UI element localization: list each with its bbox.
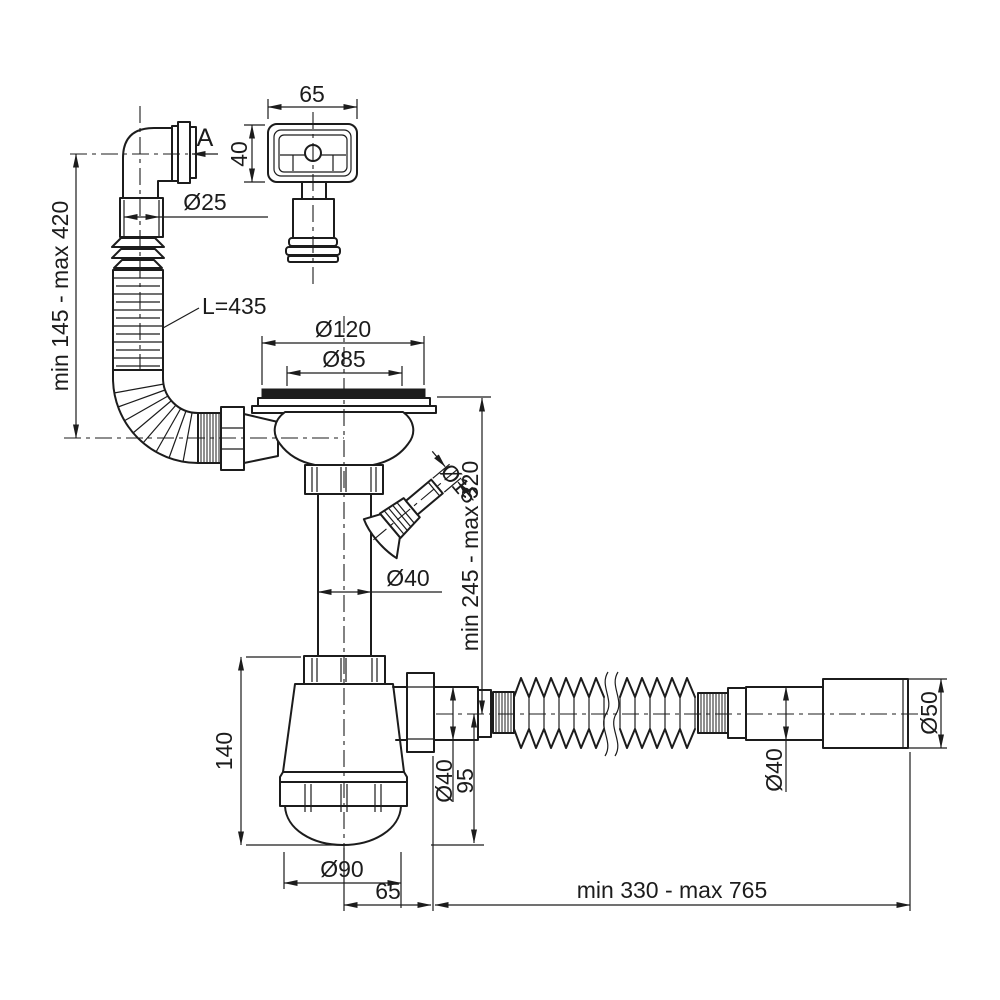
dim-label-vertical-range-right: min 245 - max 320 [457,461,483,651]
siphon-assembly-drawing: Ø15 [0,0,1000,1000]
technical-drawing-page: Ø15 [0,0,1000,1000]
dim-label-vertical-range-left: min 145 - max 420 [47,201,73,391]
overflow-neck [302,182,326,199]
overflow-corrugated-hose [112,238,221,463]
dim-d40-tailpipe: Ø40 [318,565,442,592]
hose-length-callout: L=435 [163,293,267,328]
center-lines [64,106,934,860]
elbow-flange-plate [178,122,190,183]
dim-label-outlet-drop: 95 [452,768,478,794]
dim-horizontal-range: min 330 - max 765 [435,752,910,911]
view-a-callout: A [192,124,218,154]
dim-vertical-range-left: min 145 - max 420 [47,154,76,438]
dim-label-d25: Ø25 [183,189,226,215]
dim-label-hose-length: L=435 [202,293,267,319]
dim-label-d85: Ø85 [322,346,365,372]
overflow-elbow [120,122,196,237]
dim-label-horizontal-range: min 330 - max 765 [577,877,767,903]
dim-label-d120: Ø120 [315,316,371,342]
dim-overflow-height: 40 [226,125,265,182]
trap-outlet-nut [407,673,434,752]
dim-label-d40-flex: Ø40 [761,748,787,791]
hose-ribs [113,278,163,366]
dim-label-trap-height: 140 [211,732,237,770]
dim-label-overflow-width: 65 [299,81,325,107]
dim-label-d50: Ø50 [916,691,942,734]
dim-label-trap-offset: 65 [375,878,401,904]
trap-cup [285,806,401,845]
elbow-flange-plate [190,127,196,178]
dim-label-d40-tailpipe: Ø40 [386,565,429,591]
view-a-label: A [197,124,214,152]
bottle-trap [280,656,434,845]
dim-label-overflow-height: 40 [226,141,252,167]
dim-label-d90: Ø90 [320,856,363,882]
dim-vertical-range-right: min 245 - max 320 [437,397,491,714]
